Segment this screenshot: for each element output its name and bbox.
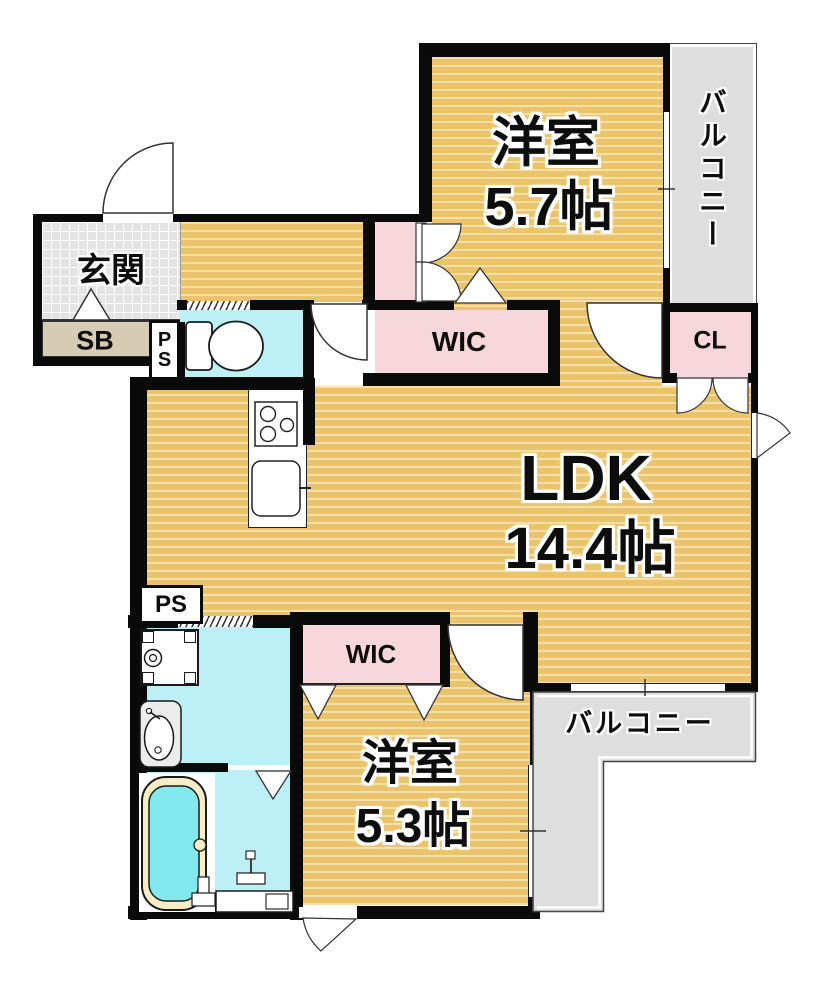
- wall: [419, 43, 670, 57]
- wall: [751, 303, 758, 413]
- floor-toilet: [180, 306, 303, 377]
- wall: [290, 612, 448, 625]
- floor-plan: P S PS: [0, 0, 828, 1000]
- wall: [33, 214, 103, 222]
- wall: [725, 683, 758, 692]
- label-balcony-right: バルコニー: [697, 88, 725, 253]
- kitchen-counter: [248, 388, 307, 528]
- ps-letter-p: P: [158, 330, 171, 350]
- label-room53-size: 5.3帖: [356, 803, 471, 851]
- label-balcony-bottom: バルコニー: [565, 711, 714, 738]
- entrance-door-arc: [103, 143, 173, 213]
- outswing-window-right: [757, 413, 790, 458]
- window-ldk-right: [751, 413, 758, 458]
- wall: [173, 214, 432, 222]
- wall: [33, 357, 152, 366]
- wall: [440, 612, 450, 687]
- ps-kitchen-label: PS: [155, 593, 187, 617]
- sliding-door-toilet: [187, 301, 250, 310]
- wall: [357, 906, 540, 919]
- wall: [363, 373, 560, 386]
- label-shoe-box: SB: [76, 328, 114, 355]
- ps-letter-s: S: [158, 350, 171, 370]
- pipe-shaft-kitchen: PS: [139, 585, 203, 624]
- label-room53-name: 洋室: [362, 740, 458, 788]
- wall: [419, 43, 432, 222]
- outswing-window-bottom: [299, 907, 356, 951]
- label-room57-name: 洋室: [492, 116, 600, 170]
- floor-washroom: [145, 628, 290, 765]
- wall: [363, 215, 375, 310]
- label-ldk-name: LDK: [520, 446, 652, 510]
- label-wic-bottom: WIC: [346, 641, 397, 667]
- wall: [662, 303, 758, 312]
- wall: [303, 378, 315, 445]
- wall: [662, 373, 677, 383]
- wall: [303, 300, 314, 390]
- wall: [548, 302, 560, 383]
- floor-closet-57: [375, 222, 418, 302]
- label-genkan: 玄関: [77, 254, 145, 288]
- wall: [528, 897, 540, 919]
- window-ldk-balcony: [571, 683, 725, 692]
- pipe-shaft-entrance: P S: [149, 320, 180, 380]
- floor-bathroom: [145, 770, 290, 908]
- floor-hallway: [180, 222, 363, 302]
- wall: [533, 683, 571, 692]
- wall: [177, 300, 187, 310]
- wall: [128, 906, 300, 919]
- wall: [663, 43, 670, 112]
- floor-room57-entry: [554, 300, 662, 386]
- wall: [530, 692, 539, 765]
- wall: [362, 300, 454, 310]
- label-wic-top: WIC: [432, 328, 486, 356]
- label-ldk-size: 14.4帖: [505, 520, 676, 578]
- wall: [290, 612, 303, 920]
- label-closet-cl: CL: [693, 329, 726, 354]
- wall: [33, 214, 42, 366]
- wall: [135, 763, 228, 772]
- window-room53-balcony: [528, 765, 539, 897]
- window-room57-balcony: [663, 112, 670, 268]
- wall: [130, 377, 147, 920]
- label-room57-size: 5.7帖: [484, 180, 613, 234]
- wall: [662, 303, 670, 383]
- hallway-door-arc: [311, 304, 367, 360]
- wall: [751, 458, 758, 687]
- wall: [523, 612, 538, 692]
- wic-bottom-edge: [303, 683, 440, 685]
